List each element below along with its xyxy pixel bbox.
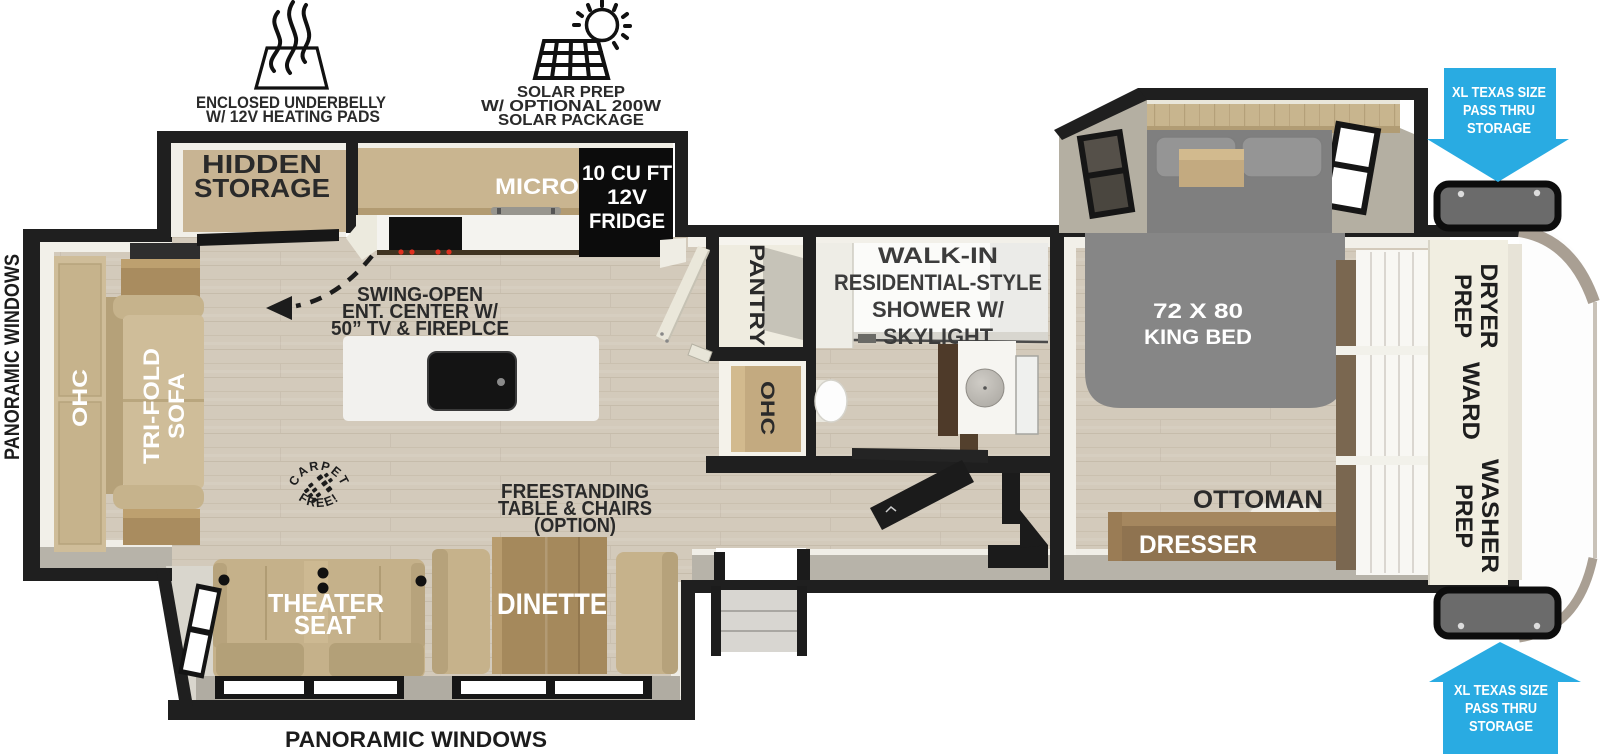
svg-text:WASHER: WASHER [1476, 459, 1503, 573]
svg-text:STORAGE: STORAGE [1467, 120, 1531, 137]
svg-text:PASS THRU: PASS THRU [1465, 700, 1537, 717]
svg-text:72 X 80: 72 X 80 [1153, 300, 1243, 323]
svg-text:10 CU FT: 10 CU FT [582, 162, 672, 185]
svg-text:SOFA: SOFA [164, 373, 189, 439]
svg-text:12V: 12V [607, 186, 647, 209]
svg-text:50” TV & FIREPLCE: 50” TV & FIREPLCE [331, 318, 509, 340]
svg-text:PANORAMIC WINDOWS: PANORAMIC WINDOWS [1, 254, 24, 460]
svg-text:SEAT: SEAT [294, 610, 356, 640]
svg-text:SOLAR PACKAGE: SOLAR PACKAGE [498, 112, 644, 129]
svg-text:W/ 12V HEATING PADS: W/ 12V HEATING PADS [206, 107, 380, 126]
svg-text:RESIDENTIAL-STYLE: RESIDENTIAL-STYLE [834, 270, 1042, 295]
svg-text:STORAGE: STORAGE [1469, 718, 1533, 735]
svg-text:DINETTE: DINETTE [497, 588, 607, 621]
svg-text:(OPTION): (OPTION) [534, 515, 616, 537]
svg-text:WALK-IN: WALK-IN [878, 243, 998, 268]
svg-text:STORAGE: STORAGE [194, 173, 330, 203]
svg-text:MICRO: MICRO [495, 174, 579, 199]
svg-text:SHOWER W/: SHOWER W/ [872, 297, 1004, 322]
svg-text:DRESSER: DRESSER [1139, 531, 1257, 559]
svg-text:WARD: WARD [1457, 362, 1484, 440]
svg-text:PREP: PREP [1450, 484, 1477, 548]
svg-text:PREP: PREP [1449, 274, 1476, 338]
svg-text:FRIDGE: FRIDGE [589, 210, 665, 233]
svg-text:XL TEXAS SIZE: XL TEXAS SIZE [1454, 682, 1548, 699]
svg-text:OHC: OHC [756, 381, 777, 435]
svg-text:TRI-FOLD: TRI-FOLD [139, 348, 164, 464]
svg-text:KING BED: KING BED [1144, 326, 1252, 349]
svg-text:OHC: OHC [69, 369, 92, 427]
svg-text:PASS THRU: PASS THRU [1463, 102, 1535, 119]
svg-text:DRYER: DRYER [1475, 264, 1502, 349]
svg-text:PANORAMIC WINDOWS: PANORAMIC WINDOWS [285, 727, 547, 752]
svg-text:PANTRY: PANTRY [745, 244, 768, 346]
svg-text:XL TEXAS SIZE: XL TEXAS SIZE [1452, 84, 1546, 101]
svg-text:OTTOMAN: OTTOMAN [1193, 486, 1323, 514]
